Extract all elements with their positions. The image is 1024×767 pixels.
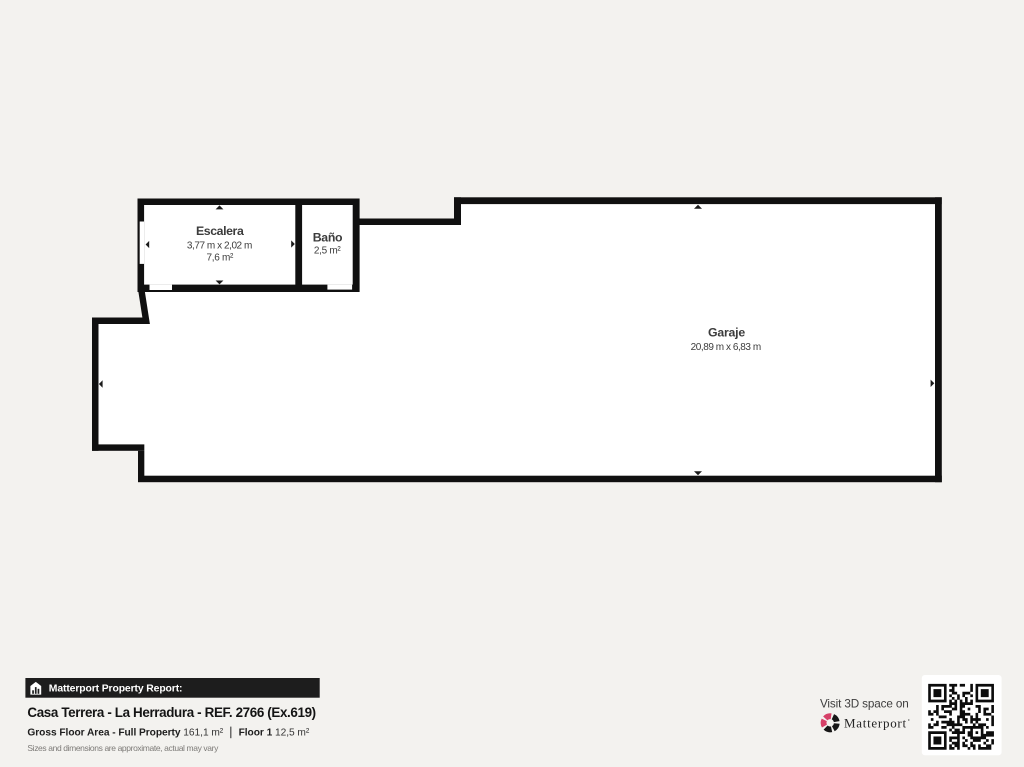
svg-text:Escalera: Escalera [196,224,244,238]
svg-text:Casa Terrera - La Herradura -: Casa Terrera - La Herradura - REF. 2766 … [27,705,315,720]
svg-text:7,6 m²: 7,6 m² [207,252,235,263]
svg-text:Matterport: Matterport [844,715,907,730]
svg-text:Gross Floor Area - Full Proper: Gross Floor Area - Full Property 161,1 m… [27,727,223,738]
svg-text:3,77 m x 2,02 m: 3,77 m x 2,02 m [187,240,252,251]
svg-text:Garaje: Garaje [708,325,745,339]
svg-text:Floor 1 12,5 m²: Floor 1 12,5 m² [239,727,310,738]
svg-text:Visit 3D space on: Visit 3D space on [820,697,909,710]
svg-text:Baño: Baño [313,230,343,244]
svg-text:20,89 m x 6,83 m: 20,89 m x 6,83 m [691,342,761,353]
svg-text:Matterport Property Report:: Matterport Property Report: [49,683,183,694]
svg-text:Sizes and dimensions are appro: Sizes and dimensions are approximate, ac… [27,743,219,753]
svg-text:2,5 m²: 2,5 m² [314,246,342,257]
